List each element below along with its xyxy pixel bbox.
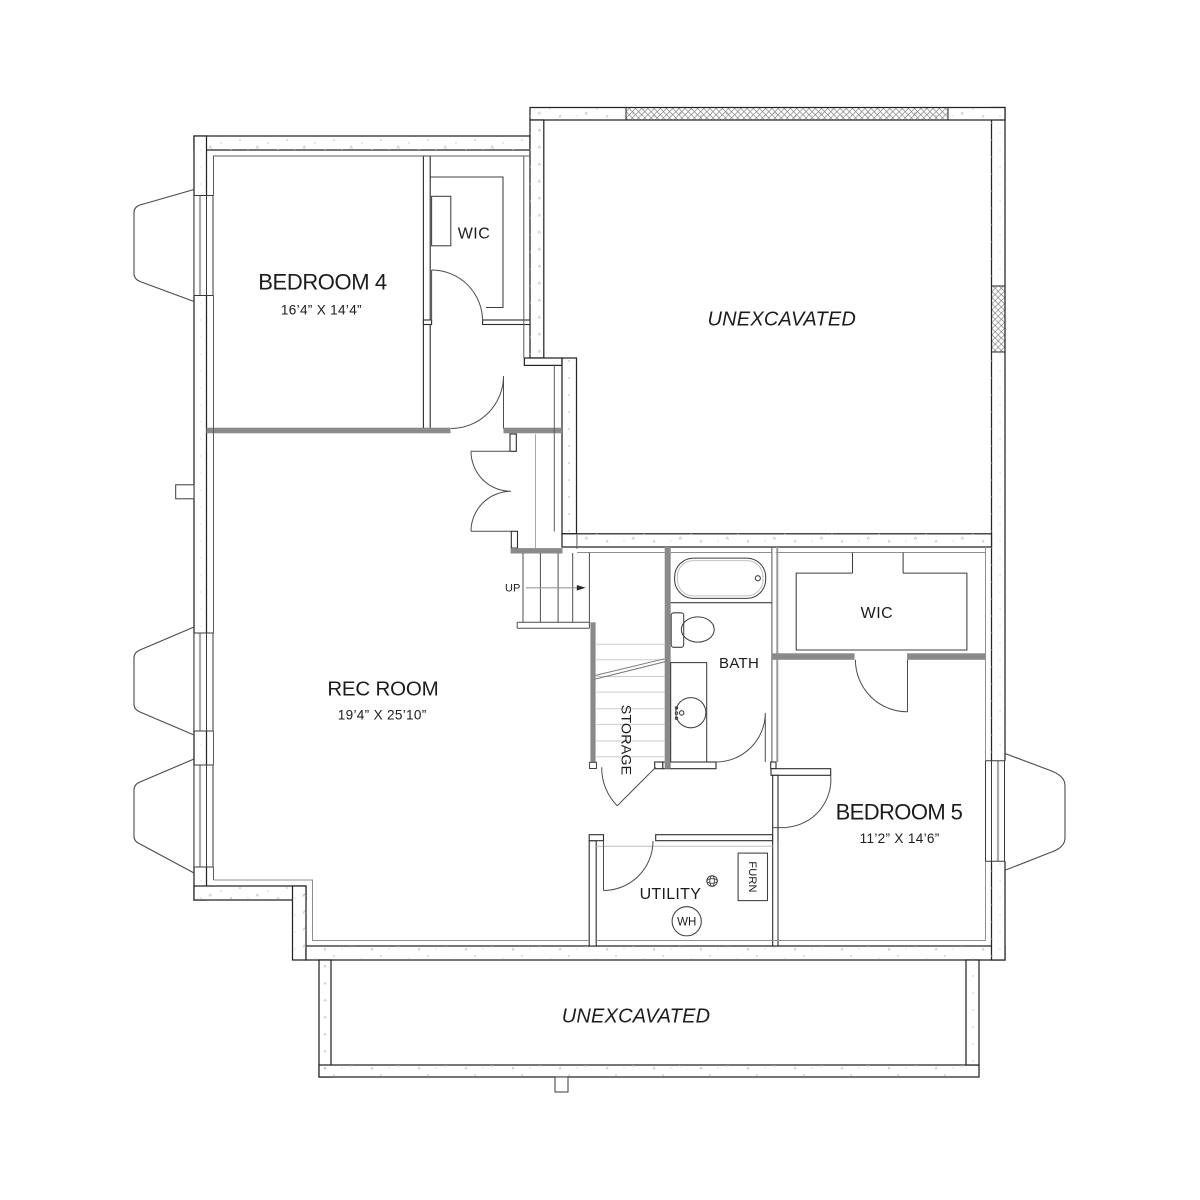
- svg-text:UNEXCAVATED: UNEXCAVATED: [708, 308, 857, 330]
- svg-text:11’2” X 14’6”: 11’2” X 14’6”: [860, 831, 940, 846]
- svg-text:FURN: FURN: [746, 861, 758, 892]
- svg-text:WH: WH: [677, 917, 696, 929]
- svg-text:UTILITY: UTILITY: [640, 886, 702, 903]
- svg-text:BEDROOM 4: BEDROOM 4: [258, 270, 387, 295]
- svg-text:REC ROOM: REC ROOM: [327, 678, 438, 701]
- svg-text:WIC: WIC: [458, 226, 491, 243]
- svg-text:19’4” X 25’10”: 19’4” X 25’10”: [338, 708, 427, 723]
- svg-text:BATH: BATH: [719, 655, 759, 672]
- svg-text:UP: UP: [505, 582, 520, 594]
- svg-text:BEDROOM 5: BEDROOM 5: [836, 800, 963, 825]
- svg-text:16’4” X 14’4”: 16’4” X 14’4”: [281, 303, 362, 318]
- svg-text:STORAGE: STORAGE: [618, 705, 634, 776]
- svg-text:WIC: WIC: [861, 605, 894, 622]
- svg-text:UNEXCAVATED: UNEXCAVATED: [562, 1005, 711, 1027]
